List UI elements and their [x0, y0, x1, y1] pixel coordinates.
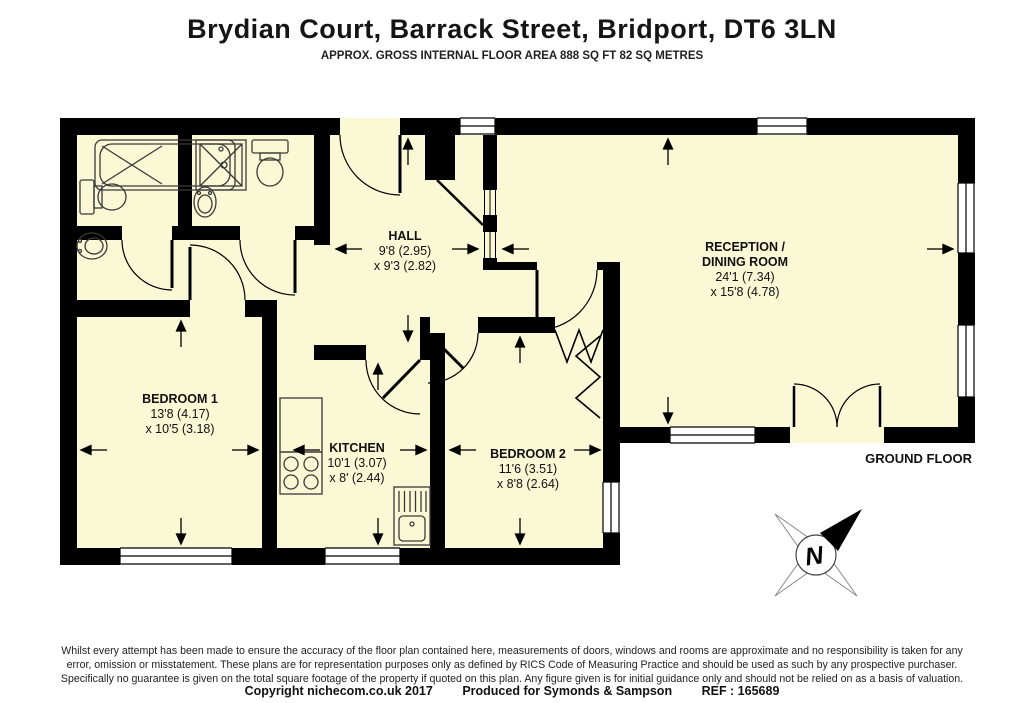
room-dim2: x 15'8 (4.78) — [645, 285, 845, 300]
room-name: BEDROOM 2 — [448, 447, 608, 462]
disclaimer-line-1: Whilst every attempt has been made to en… — [0, 645, 1024, 659]
floorplan-page: Brydian Court, Barrack Street, Bridport,… — [0, 0, 1024, 703]
room-dim1: 24'1 (7.34) — [645, 270, 845, 285]
room-dim2: x 9'3 (2.82) — [330, 259, 480, 274]
room-name: RECEPTION / — [645, 240, 845, 255]
room-dim1: 11'6 (3.51) — [448, 462, 608, 477]
room-label-bedroom2: BEDROOM 2 11'6 (3.51) x 8'8 (2.64) — [448, 447, 608, 492]
floorplan-canvas: N — [0, 0, 1024, 703]
room-dim2: x 10'5 (3.18) — [90, 422, 270, 437]
room-label-bedroom1: BEDROOM 1 13'8 (4.17) x 10'5 (3.18) — [90, 392, 270, 437]
disclaimer-line-2: error, omission or misstatement. These p… — [0, 659, 1024, 673]
room-label-reception: RECEPTION / DINING ROOM 24'1 (7.34) x 15… — [645, 240, 845, 300]
ref-text: REF : 165689 — [702, 684, 780, 698]
room-dim1: 10'1 (3.07) — [287, 456, 427, 471]
room-name: KITCHEN — [287, 441, 427, 456]
room-name: HALL — [330, 229, 480, 244]
compass-rose: N — [775, 509, 862, 596]
floor-label: GROUND FLOOR — [780, 451, 972, 466]
room-name: BEDROOM 1 — [90, 392, 270, 407]
room-dim1: 9'8 (2.95) — [330, 244, 480, 259]
room-dim1: 13'8 (4.17) — [90, 407, 270, 422]
room-dim2: x 8'8 (2.64) — [448, 477, 608, 492]
room-dim2: x 8' (2.44) — [287, 471, 427, 486]
copyright-text: Copyright nichecom.co.uk 2017 — [245, 684, 433, 698]
room-name-2: DINING ROOM — [645, 255, 845, 270]
copyright-line: Copyright nichecom.co.uk 2017 Produced f… — [0, 684, 1024, 698]
room-label-kitchen: KITCHEN 10'1 (3.07) x 8' (2.44) — [287, 441, 427, 486]
room-label-hall: HALL 9'8 (2.95) x 9'3 (2.82) — [330, 229, 480, 274]
produced-text: Produced for Symonds & Sampson — [462, 684, 672, 698]
disclaimer-text: Whilst every attempt has been made to en… — [0, 645, 1024, 686]
